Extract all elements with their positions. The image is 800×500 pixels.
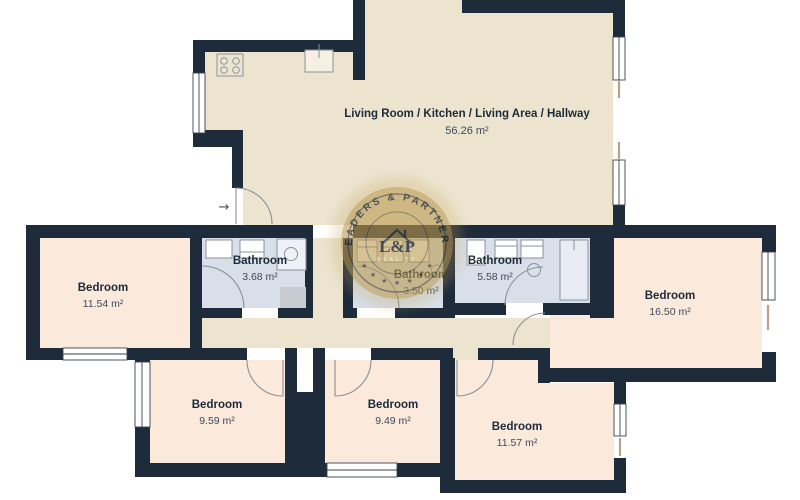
bedroom-left-label: Bedroom	[78, 282, 128, 294]
star-icon: ★	[381, 277, 387, 285]
floorplan: → Living Room / Kitchen / Living Area / …	[0, 0, 800, 500]
bedroom-br-label: Bedroom	[492, 421, 542, 433]
wall-segment	[395, 308, 455, 318]
wall-segment	[762, 352, 776, 382]
bedroom-bl-label: Bedroom	[192, 399, 242, 411]
wall-segment	[443, 480, 626, 493]
star-icon: ★	[370, 271, 376, 279]
wall-segment	[538, 368, 776, 382]
bedroom-right-area: 16.50 m²	[649, 306, 691, 318]
cabinet-block	[280, 287, 306, 308]
bedroom-bl-area: 9.59 m²	[199, 415, 235, 427]
bathroom1-label: Bathroom	[233, 255, 287, 267]
star-icon: ★	[427, 262, 433, 270]
floorplan-svg: → Living Room / Kitchen / Living Area / …	[0, 0, 800, 500]
bedroom-br-floor	[455, 360, 538, 480]
shaft-notch	[297, 348, 313, 392]
wall-segment	[26, 225, 313, 238]
bathroom3-area: 5.58 m²	[477, 271, 513, 283]
living-floor-top	[365, 0, 462, 53]
bedroom-right-floor2	[550, 315, 614, 368]
wall-segment	[613, 0, 625, 37]
sink-icon	[521, 240, 543, 258]
stove-icon	[217, 54, 243, 76]
window	[135, 362, 150, 427]
watermark-subtitle: REALITY	[377, 257, 417, 263]
wall-segment	[278, 308, 313, 318]
wall-segment	[478, 348, 538, 360]
sink-icon	[206, 240, 232, 258]
star-icon: ★	[418, 271, 424, 279]
bedroom-right-label: Bedroom	[645, 290, 695, 302]
living-room-label: Living Room / Kitchen / Living Area / Ha…	[344, 108, 590, 120]
living-floor-topright	[462, 13, 613, 53]
wall-segment	[440, 358, 455, 493]
watermark-badge: LEADERS & PARTNERS L&P REALITY ★ ★ ★ ★ ★…	[331, 177, 463, 309]
wall-segment	[455, 303, 506, 315]
window	[613, 37, 625, 80]
window	[193, 73, 205, 133]
wall-segment	[614, 225, 776, 238]
bathroom1-area: 3.68 m²	[242, 271, 278, 283]
window	[327, 463, 397, 477]
window	[63, 348, 127, 360]
bedroom-br-area: 11.57 m²	[497, 437, 538, 449]
wall-segment	[614, 458, 626, 493]
wall-segment	[26, 225, 40, 360]
bedroom-bm-floor	[325, 360, 440, 463]
wall-segment	[462, 0, 625, 13]
bedroom-right-floor	[614, 238, 762, 368]
wall-segment	[135, 463, 455, 477]
living-room-area: 56.26 m²	[445, 125, 489, 137]
window	[762, 252, 775, 300]
entry-door-gap	[232, 188, 243, 225]
entrance-arrow-icon: →	[219, 200, 230, 215]
bathroom3-label: Bathroom	[468, 255, 522, 267]
wall-segment	[232, 147, 243, 188]
wall-segment	[353, 0, 365, 80]
star-icon: ★	[361, 262, 367, 270]
wall-segment	[202, 348, 247, 360]
bedroom-bm-area: 9.49 m²	[375, 415, 411, 427]
window	[614, 404, 626, 436]
star-icon: ★	[394, 279, 400, 287]
wall-segment	[343, 308, 357, 318]
wall-segment	[190, 308, 242, 318]
bedroom-br-floor2	[538, 383, 614, 480]
watermark-monogram: L&P	[379, 237, 415, 256]
wall-segment	[614, 382, 626, 404]
wall-segment	[190, 225, 202, 360]
bedroom-left-area: 11.54 m²	[83, 298, 124, 310]
hallway-door-opening	[453, 348, 478, 360]
bedroom-bm-label: Bedroom	[368, 399, 418, 411]
wall-segment	[543, 303, 614, 315]
bedroom-bl-floor	[150, 360, 285, 463]
hallway-strip-floor	[202, 318, 550, 348]
star-icon: ★	[407, 277, 413, 285]
window	[613, 160, 625, 205]
wall-segment	[762, 225, 776, 252]
